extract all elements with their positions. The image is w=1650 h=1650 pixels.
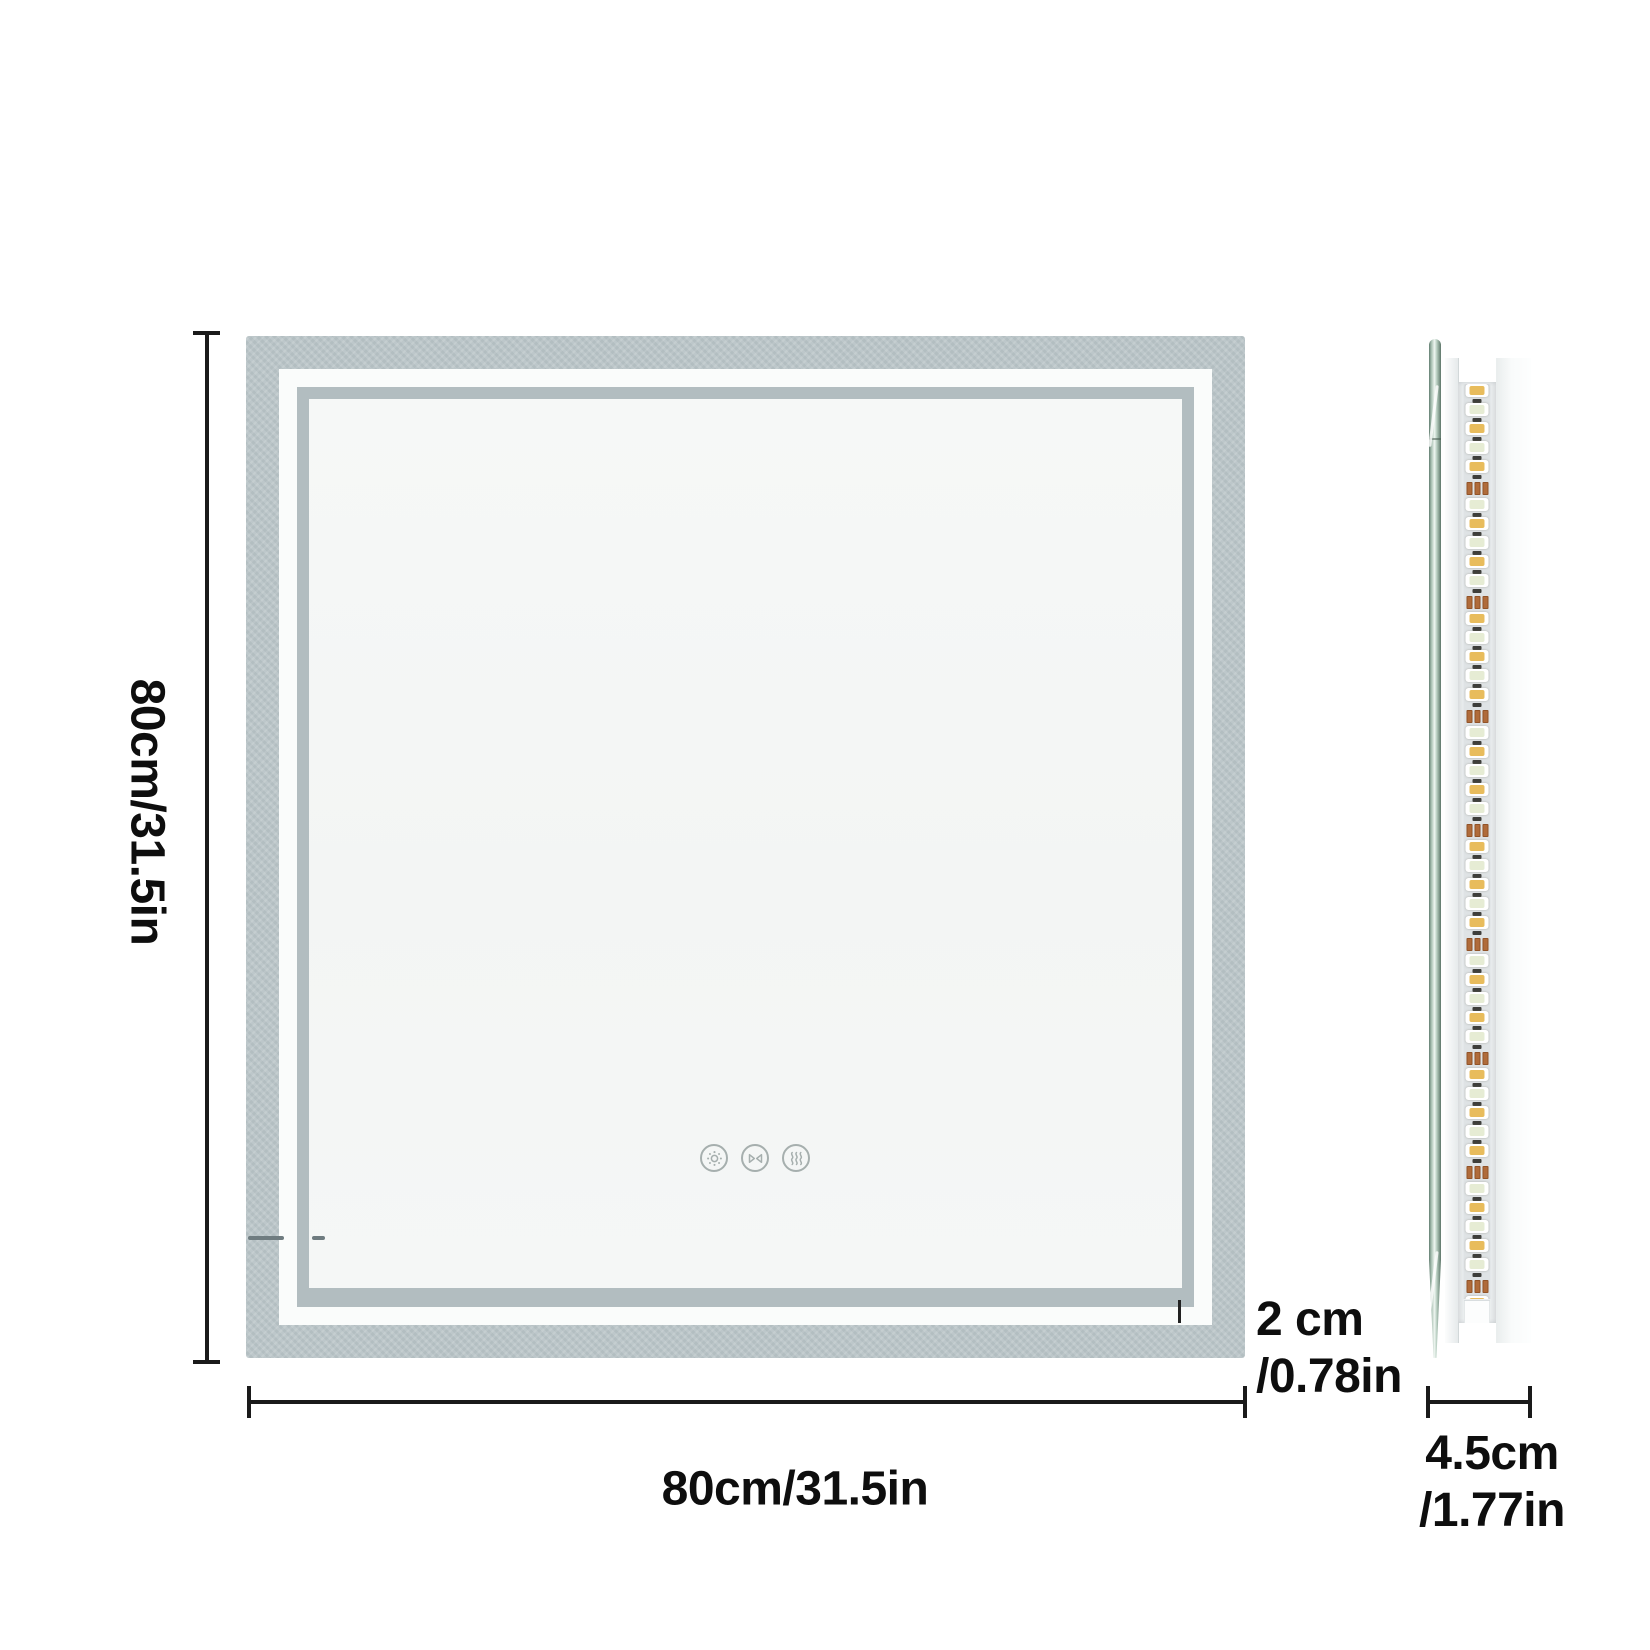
led-unit	[1466, 745, 1489, 764]
led-unit	[1466, 631, 1489, 650]
resistor	[1466, 1052, 1472, 1065]
resistor	[1466, 482, 1472, 495]
led-core	[1470, 1260, 1485, 1269]
led	[1466, 612, 1489, 625]
led-unit	[1466, 669, 1489, 688]
width-dimension-tick-right	[1243, 1386, 1247, 1418]
led-unit	[1466, 612, 1489, 631]
led-unit	[1466, 536, 1489, 555]
led	[1466, 460, 1489, 473]
led	[1466, 384, 1489, 397]
led	[1466, 1087, 1489, 1100]
led-unit	[1466, 460, 1489, 479]
width-dimension-label: 80cm/31.5in	[662, 1462, 929, 1519]
led-core	[1470, 804, 1485, 813]
led	[1466, 669, 1489, 682]
led-core	[1470, 557, 1485, 566]
led	[1466, 1011, 1489, 1024]
led-unit	[1466, 650, 1489, 669]
led-core	[1470, 766, 1485, 775]
led-unit	[1466, 726, 1489, 745]
resistor-group	[1466, 1049, 1488, 1068]
resistor	[1474, 1166, 1480, 1179]
resistor	[1482, 1280, 1488, 1293]
led-unit	[1466, 517, 1489, 536]
led-core	[1470, 1184, 1485, 1193]
led-unit	[1466, 1182, 1489, 1201]
led-unit	[1466, 1144, 1489, 1163]
led-core	[1470, 899, 1485, 908]
resistor	[1482, 824, 1488, 837]
led-core	[1470, 1146, 1485, 1155]
frame-seam-line	[312, 1236, 325, 1240]
housing-rail-right	[1496, 358, 1531, 1343]
width-dimension-tick-left	[247, 1386, 251, 1418]
resistor	[1474, 596, 1480, 609]
resistor	[1482, 1052, 1488, 1065]
resistor-group	[1466, 593, 1488, 612]
led-core	[1470, 1298, 1485, 1299]
glass-highlight	[1428, 1251, 1438, 1311]
led-unit	[1466, 1087, 1489, 1106]
resistor	[1482, 482, 1488, 495]
led-unit	[1466, 403, 1489, 422]
led	[1466, 574, 1489, 587]
led-unit	[1466, 441, 1489, 460]
led	[1466, 498, 1489, 511]
led	[1466, 745, 1489, 758]
led-unit	[1466, 878, 1489, 897]
led-unit	[1466, 1220, 1489, 1239]
led-unit	[1466, 840, 1489, 859]
led-core	[1470, 1222, 1485, 1231]
resistor	[1482, 938, 1488, 951]
frame-width-tick	[1178, 1300, 1181, 1323]
depth-dimension-tick-left	[1426, 1386, 1430, 1418]
led	[1466, 1201, 1489, 1214]
mirror-glass-edge	[1429, 339, 1441, 1362]
led-core	[1470, 576, 1485, 585]
led-core	[1470, 405, 1485, 414]
led-unit	[1466, 498, 1489, 517]
depth-dimension-line	[1428, 1400, 1532, 1404]
frame-width-label: 2 cm /0.78in	[1256, 1292, 1402, 1405]
led	[1466, 422, 1489, 435]
resistor-group	[1466, 935, 1488, 954]
led-core	[1470, 386, 1485, 395]
resistor	[1474, 1280, 1480, 1293]
led-core	[1470, 424, 1485, 433]
led-core	[1470, 956, 1485, 965]
led-unit	[1466, 783, 1489, 802]
led-unit	[1466, 1201, 1489, 1220]
led-unit	[1466, 1125, 1489, 1144]
led-core	[1470, 1013, 1485, 1022]
led-unit	[1466, 954, 1489, 973]
led	[1466, 783, 1489, 796]
led-core	[1470, 443, 1485, 452]
channel-end-tab	[1464, 1301, 1490, 1323]
led-unit	[1466, 555, 1489, 574]
led-core	[1470, 975, 1485, 984]
resistor	[1482, 710, 1488, 723]
led	[1466, 878, 1489, 891]
led	[1466, 631, 1489, 644]
led-unit	[1466, 1011, 1489, 1030]
led-core	[1470, 500, 1485, 509]
resistor-group	[1466, 1163, 1488, 1182]
led-core	[1470, 994, 1485, 1003]
frame-width-label-line2: /0.78in	[1256, 1349, 1402, 1406]
resistor	[1474, 710, 1480, 723]
led-strip	[1464, 384, 1491, 1299]
led	[1466, 1182, 1489, 1195]
led-core	[1470, 728, 1485, 737]
led	[1466, 1030, 1489, 1043]
led	[1466, 1239, 1489, 1252]
resistor	[1474, 482, 1480, 495]
width-dimension-line	[248, 1400, 1247, 1404]
resistor	[1474, 1052, 1480, 1065]
led-core	[1470, 652, 1485, 661]
resistor	[1466, 1166, 1472, 1179]
flip-triangles-icon	[747, 1150, 764, 1167]
led	[1466, 897, 1489, 910]
led	[1466, 1144, 1489, 1157]
led	[1466, 517, 1489, 530]
led-core	[1470, 1127, 1485, 1136]
led-core	[1470, 519, 1485, 528]
led-core	[1470, 918, 1485, 927]
led-unit	[1466, 897, 1489, 916]
led	[1466, 764, 1489, 777]
depth-dimension-tick-right	[1528, 1386, 1532, 1418]
led-unit	[1466, 764, 1489, 783]
defog-icon	[788, 1150, 805, 1167]
resistor-group	[1466, 707, 1488, 726]
resistor	[1466, 938, 1472, 951]
led-unit	[1466, 1068, 1489, 1087]
led	[1466, 973, 1489, 986]
led	[1466, 441, 1489, 454]
resistor	[1482, 596, 1488, 609]
led	[1466, 688, 1489, 701]
led-unit	[1466, 992, 1489, 1011]
led-core	[1470, 1070, 1485, 1079]
brightness-icon	[706, 1150, 723, 1167]
depth-label-line2: /1.77in	[1419, 1483, 1565, 1540]
led-core	[1470, 690, 1485, 699]
led-unit	[1466, 1030, 1489, 1049]
mirror-flip-button	[741, 1144, 769, 1172]
led-channel	[1458, 382, 1496, 1323]
led-unit	[1466, 574, 1489, 593]
led-core	[1470, 462, 1485, 471]
mirror-front-view	[246, 336, 1245, 1358]
led-core	[1470, 614, 1485, 623]
led-unit	[1466, 916, 1489, 935]
led-core	[1470, 633, 1485, 642]
led-unit	[1466, 1106, 1489, 1125]
resistor-group	[1466, 1277, 1488, 1296]
led-unit	[1466, 802, 1489, 821]
led-unit	[1466, 1296, 1489, 1299]
frame-width-label-line1: 2 cm	[1256, 1292, 1402, 1349]
led-unit	[1466, 422, 1489, 441]
led	[1466, 1258, 1489, 1271]
resistor	[1466, 596, 1472, 609]
led	[1466, 1068, 1489, 1081]
led	[1466, 1296, 1489, 1299]
resistor	[1482, 1166, 1488, 1179]
resistor	[1466, 710, 1472, 723]
led	[1466, 802, 1489, 815]
led-core	[1470, 861, 1485, 870]
resistor-group	[1466, 821, 1488, 840]
led-core	[1470, 1108, 1485, 1117]
resistor-group	[1466, 479, 1488, 498]
led	[1466, 1106, 1489, 1119]
resistor	[1474, 938, 1480, 951]
led-core	[1470, 1203, 1485, 1212]
led-unit	[1466, 1258, 1489, 1277]
led-unit	[1466, 688, 1489, 707]
led-core	[1470, 785, 1485, 794]
led	[1466, 403, 1489, 416]
product-dimension-diagram: 80cm/31.5in 80cm/31.5in 2 cm /0.78in 4.5…	[0, 0, 1650, 1650]
led	[1466, 916, 1489, 929]
led	[1466, 536, 1489, 549]
led-core	[1470, 1032, 1485, 1041]
led-unit	[1466, 384, 1489, 403]
led-core	[1470, 538, 1485, 547]
led-core	[1470, 671, 1485, 680]
resistor	[1466, 824, 1472, 837]
led	[1466, 1220, 1489, 1233]
defog-button	[782, 1144, 810, 1172]
led	[1466, 555, 1489, 568]
led-unit	[1466, 973, 1489, 992]
led-core	[1470, 1241, 1485, 1250]
depth-dimension-label: 4.5cm /1.77in	[1419, 1426, 1565, 1539]
led-core	[1470, 1089, 1485, 1098]
depth-label-line1: 4.5cm	[1419, 1426, 1565, 1483]
height-dimension-line	[205, 332, 209, 1364]
led	[1466, 650, 1489, 663]
led-unit	[1466, 1239, 1489, 1258]
led	[1466, 840, 1489, 853]
led	[1466, 954, 1489, 967]
housing-rail-left	[1445, 358, 1459, 1343]
brightness-button	[700, 1144, 728, 1172]
resistor	[1474, 824, 1480, 837]
mirror-back-housing	[1445, 358, 1531, 1343]
led-core	[1470, 880, 1485, 889]
height-dimension-label: 80cm/31.5in	[118, 679, 175, 946]
led	[1466, 726, 1489, 739]
resistor	[1466, 1280, 1472, 1293]
touch-controls	[700, 1144, 810, 1172]
frame-seam-line	[248, 1236, 284, 1240]
led	[1466, 1125, 1489, 1138]
led-unit	[1466, 859, 1489, 878]
led-core	[1470, 842, 1485, 851]
led	[1466, 859, 1489, 872]
height-dimension-tick-bottom	[193, 1360, 220, 1364]
led	[1466, 992, 1489, 1005]
height-dimension-tick-top	[193, 331, 220, 335]
led-core	[1470, 747, 1485, 756]
